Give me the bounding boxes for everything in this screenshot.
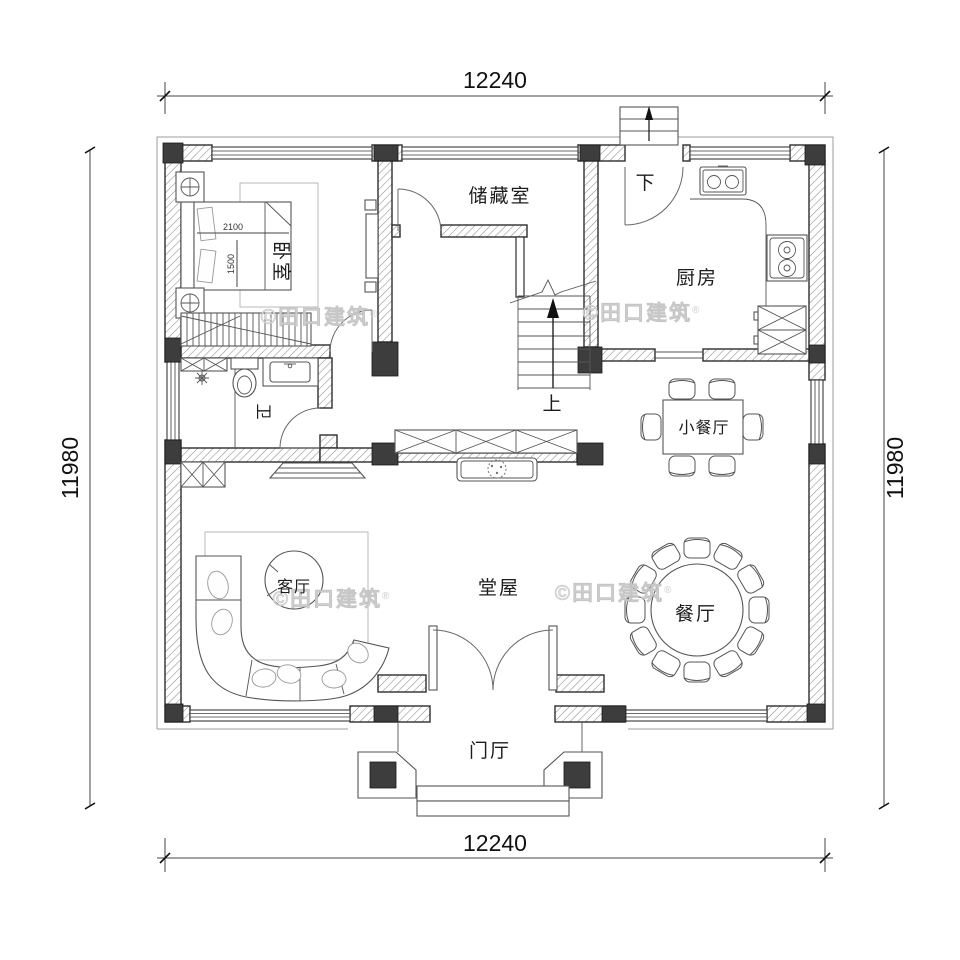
porch-pillar-base xyxy=(358,752,416,798)
cushion xyxy=(322,670,346,688)
kitchen-label: 厨房 xyxy=(676,267,718,289)
stairs-up-label: 上 xyxy=(542,393,563,415)
bed-width-dim: 2100 xyxy=(223,222,243,232)
kitchen-sink xyxy=(700,166,746,195)
plant-stand xyxy=(457,458,537,481)
floor-plan-drawing: 12240 12240 11980 11980 xyxy=(0,0,960,960)
bathroom-sink xyxy=(263,358,318,386)
storage-door xyxy=(398,189,441,231)
tv-cabinet xyxy=(365,200,378,292)
shoe-cabinet xyxy=(181,462,225,487)
dimension-right-value: 11980 xyxy=(882,437,908,499)
dimension-left-value: 11980 xyxy=(57,437,83,499)
foyer-label: 门厅 xyxy=(469,740,511,762)
dimension-bottom: 12240 xyxy=(157,830,833,872)
bed-depth-dim: 1500 xyxy=(226,254,236,274)
hall-sideboard xyxy=(395,430,577,453)
nightstand xyxy=(176,172,204,202)
shower-shelf xyxy=(181,358,227,371)
kitchen-fixtures xyxy=(690,166,807,354)
refrigerator xyxy=(754,306,806,354)
bedroom-label: 卧室 xyxy=(270,241,292,283)
small-dining-label: 小餐厅 xyxy=(678,419,729,437)
shower-drain xyxy=(195,371,209,385)
entry-double-door xyxy=(429,626,557,690)
dining-label: 餐厅 xyxy=(675,603,717,625)
stairs-down-label: 下 xyxy=(635,173,656,194)
hall-label: 堂屋 xyxy=(478,577,520,599)
svg-text:©田口建筑®: ©田口建筑® xyxy=(583,301,702,325)
back-stoop: 下 xyxy=(620,106,678,194)
svg-text:©田口建筑®: ©田口建筑® xyxy=(555,581,674,605)
storage-label: 储藏室 xyxy=(468,185,531,207)
toilet xyxy=(231,358,258,397)
doors xyxy=(280,167,683,690)
svg-text:©田口建筑®: ©田口建筑® xyxy=(261,305,380,329)
living-label: 客厅 xyxy=(277,578,311,596)
floor-plan-page: 12240 12240 11980 11980 xyxy=(0,0,960,960)
bathroom-door xyxy=(280,408,320,448)
living-room-furniture xyxy=(196,532,389,701)
dimension-right: 11980 xyxy=(879,147,908,809)
counter-edge xyxy=(690,199,766,308)
dimension-left: 11980 xyxy=(57,147,95,809)
dimension-top: 12240 xyxy=(157,67,833,114)
bathroom-fixtures xyxy=(181,358,318,448)
entry-mat xyxy=(270,463,365,478)
stair-up-arrow xyxy=(547,298,559,318)
dimension-top-value: 12240 xyxy=(463,67,527,93)
dimension-bottom-value: 12240 xyxy=(463,830,527,856)
entry-steps xyxy=(417,786,569,816)
stove xyxy=(767,235,807,281)
porch xyxy=(358,722,602,816)
bathroom-label: 卫 xyxy=(254,403,271,420)
